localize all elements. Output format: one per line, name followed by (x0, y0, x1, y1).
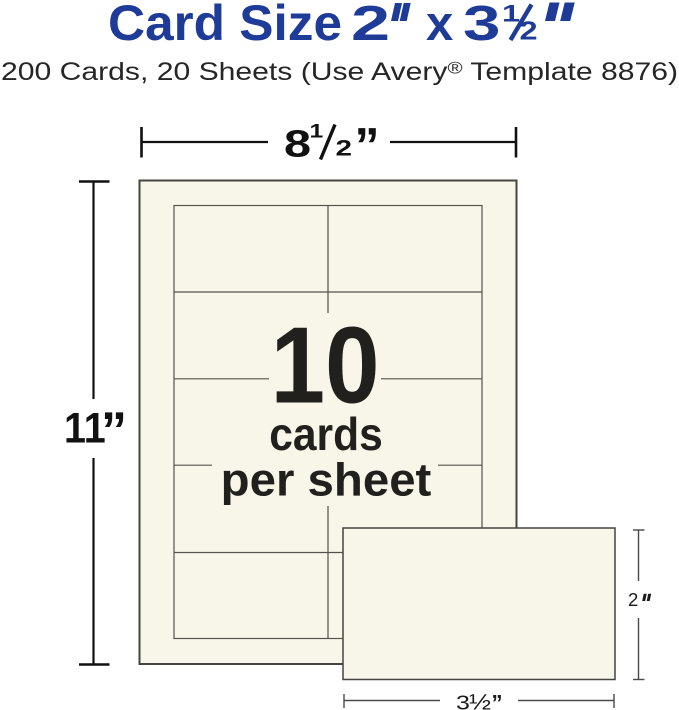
svg-text:1: 1 (310, 120, 324, 142)
svg-text:11: 11 (64, 404, 106, 452)
svg-text:2: 2 (628, 589, 638, 610)
svg-text:2: 2 (520, 17, 538, 46)
svg-text:2: 2 (336, 135, 353, 160)
svg-text:3: 3 (463, 0, 500, 51)
svg-text:200 Cards, 20 Sheets (Use Aver: 200 Cards, 20 Sheets (Use Avery® Templat… (1, 58, 678, 86)
svg-text:per sheet: per sheet (221, 454, 432, 505)
svg-text:cards: cards (269, 410, 383, 461)
svg-text:3: 3 (456, 692, 470, 710)
svg-text:½: ½ (469, 690, 491, 710)
svg-text:10: 10 (270, 304, 379, 426)
svg-text:x: x (426, 0, 453, 51)
svg-text:”: ” (101, 402, 127, 460)
svg-text:”: ” (355, 118, 380, 174)
svg-text:1: 1 (502, 0, 520, 27)
svg-text:”: ” (492, 691, 503, 710)
svg-text:2: 2 (351, 0, 390, 51)
svg-text:Card Size: Card Size (108, 0, 342, 51)
svg-text:8: 8 (284, 122, 311, 165)
